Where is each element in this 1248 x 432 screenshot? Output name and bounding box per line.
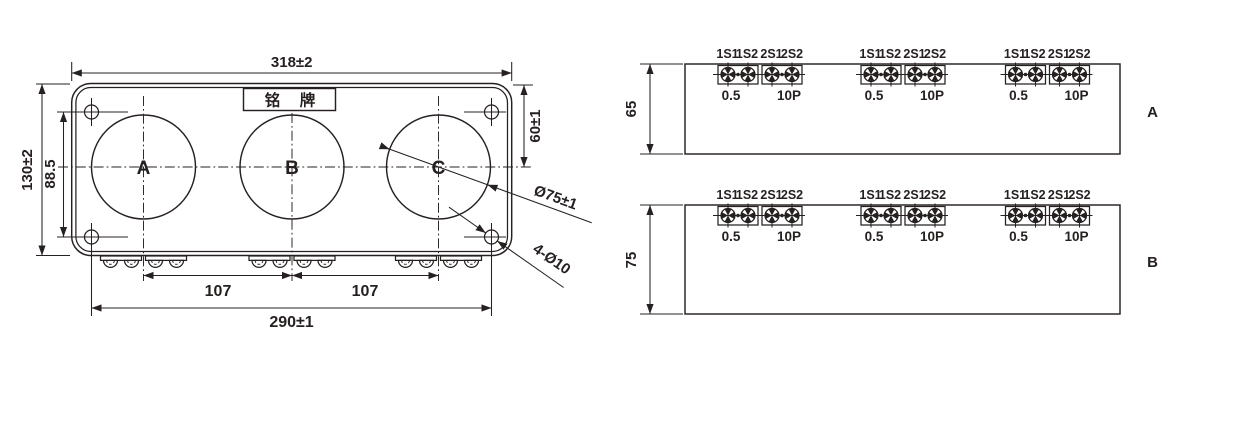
- side-view-b: 75 B: [623, 188, 1158, 314]
- dim-primary-hole-diameter: Ø75±1: [381, 146, 592, 223]
- nameplate: 铭 牌: [244, 89, 336, 111]
- dim-top-to-centerline: 60±1: [513, 85, 544, 167]
- dim-text-pitch-bc: 107: [352, 283, 379, 300]
- dim-text-top-to-centerline: 60±1: [527, 109, 544, 142]
- dim-text-depth-a: 65: [623, 101, 640, 118]
- side-view-a: 65 A: [623, 47, 1158, 154]
- dim-mount-hole-horizontal-spacing: 290±1: [92, 308, 492, 331]
- ct-outline-drawing: 1S1 1S2 2S1 2S2 0.5 10P 铭 牌: [0, 0, 1248, 432]
- dim-text-depth-b: 75: [623, 252, 640, 269]
- dim-text-pitch-ab: 107: [205, 283, 232, 300]
- dim-text-hole-vspacing: 88.5: [42, 159, 59, 188]
- dim-text-hole-hspacing: 290±1: [269, 314, 313, 331]
- dim-text-mount-holes: 4-Ø10: [530, 240, 574, 278]
- dim-overall-width: 318±2: [72, 54, 512, 81]
- bottom-terminal-strips: [101, 256, 482, 267]
- dim-mount-hole-vertical-spacing: 88.5: [42, 112, 64, 237]
- dim-text-overall-width: 318±2: [271, 54, 313, 71]
- front-view: 铭 牌 A B C: [19, 54, 592, 331]
- nameplate-label: 铭 牌: [265, 91, 318, 110]
- view-label-b: B: [1147, 254, 1158, 271]
- dim-text-hole-diameter: Ø75±1: [532, 182, 580, 213]
- dim-text-overall-height: 130±2: [19, 149, 36, 191]
- dim-hole-pitch: 107 107: [144, 276, 439, 301]
- side-view-a-body: [685, 64, 1120, 154]
- phase-label-b: B: [285, 158, 299, 179]
- view-label-a: A: [1147, 104, 1158, 121]
- phase-label-a: A: [137, 158, 151, 179]
- technical-drawing-page: 1S1 1S2 2S1 2S2 0.5 10P 铭 牌: [0, 0, 1248, 432]
